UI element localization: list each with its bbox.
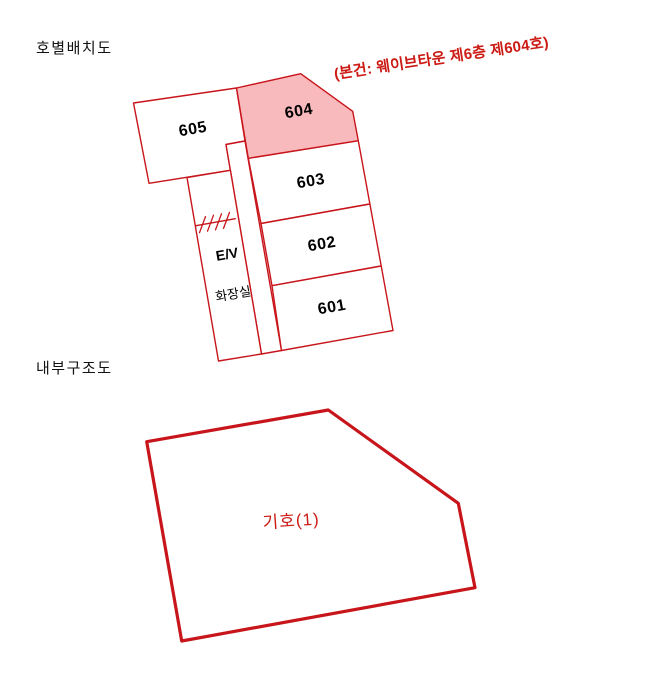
floor-plan-document: 호별배치도 내부구조도 (본건: 웨이브타운 제6층 제604호) 605 6: [0, 0, 662, 700]
parcel-label: 기호(1): [262, 505, 321, 534]
floor-plan-linework: [0, 0, 662, 700]
unit-layout-diagram: [134, 74, 394, 361]
